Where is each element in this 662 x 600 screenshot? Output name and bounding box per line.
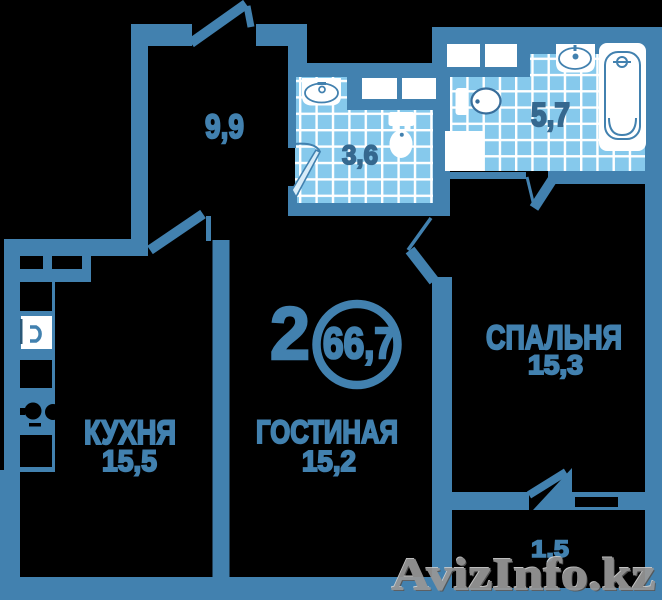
svg-text:66,7: 66,7 [323, 319, 395, 368]
svg-text:15,3: 15,3 [528, 350, 583, 380]
svg-text:15,2: 15,2 [302, 446, 356, 478]
svg-text:9,9: 9,9 [205, 108, 244, 146]
svg-text:3,6: 3,6 [342, 140, 378, 170]
svg-text:5,7: 5,7 [531, 96, 570, 133]
svg-text:15,5: 15,5 [102, 445, 157, 478]
svg-text:2: 2 [270, 292, 310, 375]
svg-text:ГОСТИНАЯ: ГОСТИНАЯ [256, 414, 398, 450]
svg-text:AvizInfo.kz: AvizInfo.kz [392, 549, 656, 600]
